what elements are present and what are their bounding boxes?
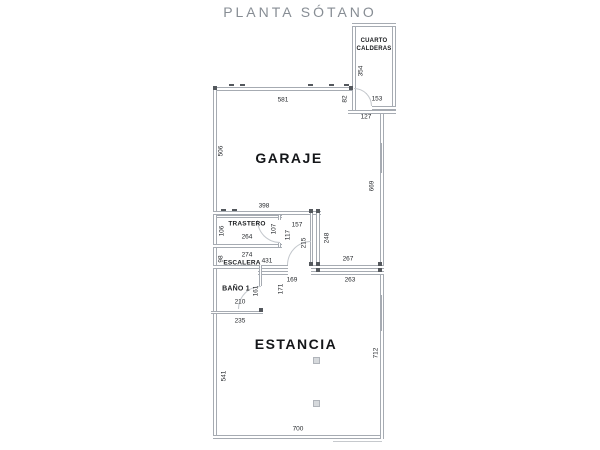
- wall-node: [378, 268, 382, 272]
- window-garage-right: [381, 143, 382, 173]
- room-label-estancia: ESTANCIA: [255, 336, 338, 352]
- wall-tick: [221, 209, 226, 211]
- dim-hall-right-width: 263: [345, 277, 356, 284]
- dim-corridor-width: 157: [292, 222, 303, 229]
- dim-escalera-width: 274: [242, 252, 253, 259]
- dim-bano-width: 210: [235, 299, 246, 306]
- room-label-bano: BAÑO 1: [222, 286, 250, 293]
- dim-hall-left-width: 169: [287, 277, 298, 284]
- wall-trastero-top: [217, 215, 282, 218]
- room-label-trastero: TRASTERO: [228, 221, 265, 228]
- dim-garage-right: 669: [369, 181, 376, 192]
- wall-node: [259, 308, 263, 312]
- dim-passage-height: 248: [324, 233, 331, 244]
- wall-trastero-bottom: [213, 244, 282, 248]
- wall-node: [213, 86, 217, 90]
- dim-garage-lower-width: 267: [343, 256, 354, 263]
- dim-trastero-left: 106: [219, 226, 226, 237]
- dim-calderas-bottom: 127: [361, 114, 372, 121]
- window-estancia-right: [381, 295, 382, 331]
- wall-tick: [229, 84, 234, 86]
- dim-garage-left: 506: [218, 146, 225, 157]
- wall-trastero-right-lower: [278, 243, 281, 247]
- wall-node: [309, 262, 313, 266]
- wall-calderas-lower: [348, 110, 396, 114]
- dim-bano-bottom-width: 235: [235, 318, 246, 325]
- dim-escalera-length: 431: [262, 258, 273, 265]
- dim-corridor-height: 215: [301, 238, 308, 249]
- pillar: [313, 400, 320, 407]
- wall-bano-right-upper: [259, 265, 262, 286]
- dim-calderas-height: 354: [358, 66, 365, 77]
- wall-node: [378, 262, 382, 266]
- wall-calderas-top: [352, 23, 396, 27]
- wall-tick: [308, 84, 313, 86]
- page-title: PLANTA SÓTANO: [0, 4, 600, 20]
- wall-bano-bottom: [211, 311, 263, 314]
- dim-bano-height: 161: [253, 286, 260, 297]
- dim-trastero-right: 107: [271, 224, 278, 235]
- wall-node: [316, 268, 320, 272]
- wall-garage-top: [213, 87, 354, 91]
- dim-garage-top: 581: [278, 97, 289, 104]
- wall-estancia-top-right: [311, 271, 384, 275]
- wall-tick: [329, 84, 334, 86]
- dim-estancia-bottom: 700: [293, 426, 304, 433]
- wall-node: [316, 209, 320, 213]
- wall-node: [316, 262, 320, 266]
- dim-escalera-left: 98: [218, 255, 225, 262]
- wall-tick: [240, 84, 245, 86]
- wall-node: [349, 86, 353, 90]
- wall-hall-upper-right: [311, 265, 384, 269]
- wall-mid-divider: [316, 211, 320, 267]
- wall-node: [309, 209, 313, 213]
- wall-outer-left: [213, 87, 217, 439]
- room-label-escalera: ESCALERA: [223, 260, 260, 267]
- wall-estancia-bottom: [213, 435, 384, 439]
- dimension-line-bottom: [333, 441, 382, 442]
- floor-plan: PLANTA SÓTANO CUARTO CALDERAS: [0, 0, 600, 450]
- wall-tick: [232, 209, 237, 211]
- pillar: [313, 357, 320, 364]
- wall-estancia-top-left: [258, 271, 288, 275]
- dim-gap-right: 82: [342, 95, 349, 102]
- room-label-garaje: GARAJE: [255, 150, 322, 166]
- calderas-door-arc: [354, 88, 372, 106]
- dim-estancia-left: 541: [221, 371, 228, 382]
- dim-calderas-door: 153: [372, 96, 383, 103]
- dim-block-top: 398: [259, 203, 270, 210]
- dim-corridor-wall: 117: [285, 230, 292, 240]
- room-label-cuarto-calderas: CUARTO CALDERAS: [353, 37, 395, 53]
- dim-bano-wall-height: 171: [278, 284, 285, 295]
- dim-estancia-right: 712: [373, 348, 380, 359]
- dim-trastero-width: 264: [242, 234, 253, 241]
- wall-tick: [344, 84, 349, 86]
- wall-garage-right: [380, 110, 384, 267]
